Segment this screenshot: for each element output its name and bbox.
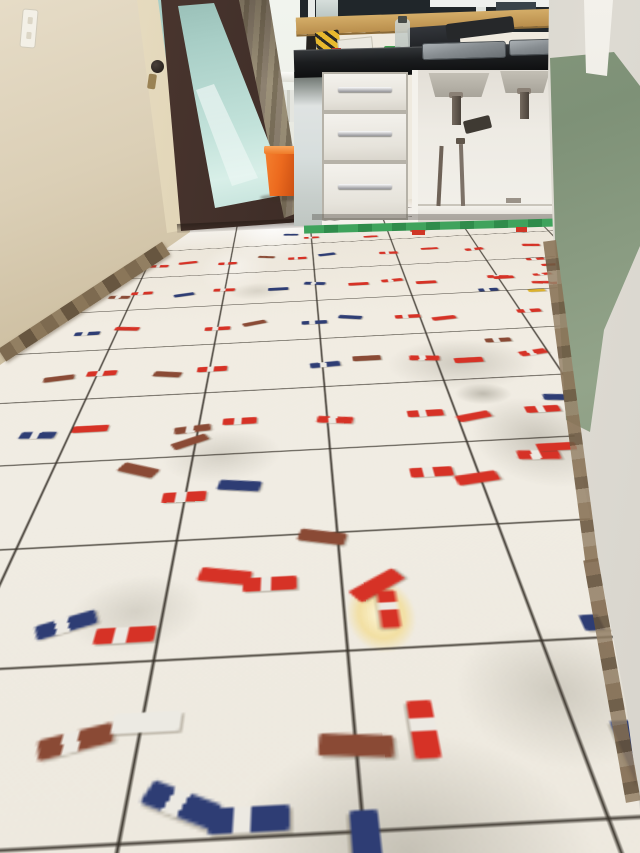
light-switch [19, 8, 38, 48]
tile-leveling-spacer [110, 710, 182, 734]
tile-leveling-spacer [338, 315, 363, 319]
drawer-middle [324, 114, 406, 160]
tile-leveling-spacer [420, 247, 438, 250]
tile-leveling-spacer [241, 576, 295, 592]
tile-leveling-spacer [205, 805, 287, 835]
tile-leveling-spacer [35, 609, 98, 640]
tile-leveling-spacer [173, 292, 194, 298]
drain-pipe-left [452, 96, 461, 125]
supply-pipe-b [459, 144, 465, 206]
tile-leveling-spacer [213, 288, 235, 291]
tile-leveling-spacer [86, 370, 118, 377]
tile-leveling-spacer [161, 491, 207, 503]
shutoff-valve [456, 138, 465, 144]
sink-basin-left [422, 41, 506, 60]
tile-leveling-spacer [288, 257, 306, 260]
tile-leveling-spacer [242, 320, 267, 327]
tile-leveling-spacer [169, 433, 209, 450]
tile-leveling-spacer [452, 356, 483, 362]
tile-leveling-spacer [351, 355, 380, 361]
tile-leveling-spacer [463, 247, 483, 251]
tile-leveling-spacer [217, 262, 236, 265]
drawer-unit [322, 72, 408, 220]
gap-view-outside [294, 72, 322, 226]
tile-leveling-spacer [70, 424, 108, 432]
tile-leveling-spacer [309, 360, 340, 368]
drawer-handle [338, 131, 392, 136]
tile-leveling-spacer [267, 287, 287, 291]
tile-leveling-spacer [431, 315, 457, 321]
tile-leveling-spacer [178, 261, 197, 265]
drawer-bottom [324, 164, 406, 218]
door-lock-icon [151, 60, 164, 73]
tile-leveling-spacer [113, 327, 140, 331]
tile-leveling-spacer [116, 462, 160, 478]
tile-leveling-spacer [318, 252, 336, 256]
under-sink-cabinet [412, 70, 558, 222]
trap-fitting [463, 115, 492, 134]
shelf-debris [506, 198, 521, 203]
red-tape-bit-2 [516, 227, 527, 232]
photo-kitchen-tiling-scene [0, 0, 640, 853]
tile-leveling-spacer [347, 282, 368, 286]
tile-leveling-spacer [516, 450, 562, 459]
tile-leveling-spacer [316, 734, 392, 757]
tile-leveling-spacer [304, 282, 326, 285]
tile-leveling-spacer [376, 589, 401, 627]
tile-leveling-spacer [394, 314, 420, 319]
drawer-handle [338, 184, 392, 189]
tile-leveling-spacer [108, 296, 131, 299]
tile-leveling-spacer [257, 256, 275, 258]
tile-leveling-spacer [222, 416, 256, 424]
tile-leveling-spacer [455, 410, 492, 422]
tile-leveling-spacer [409, 355, 439, 360]
tile-leveling-spacer [415, 280, 436, 284]
tile-leveling-spacer [151, 371, 182, 377]
drain-pipe-right [520, 92, 529, 119]
tile-leveling-spacer [204, 326, 230, 331]
tile-leveling-spacer [297, 528, 348, 545]
tile-leveling-spacer [492, 275, 514, 279]
tile-leveling-spacer [525, 257, 544, 260]
drawer-top [324, 74, 406, 110]
tile-leveling-spacer [73, 331, 100, 336]
red-tape-bit [412, 230, 425, 235]
tile-leveling-spacer [478, 288, 499, 292]
tile-leveling-spacer [406, 700, 442, 759]
tile-leveling-spacer [17, 431, 57, 438]
tile-leveling-spacer [197, 365, 228, 372]
bottle-cap [398, 16, 407, 23]
tile-leveling-spacer [453, 470, 501, 486]
tile-leveling-spacer [131, 291, 154, 295]
tile-leveling-spacer [406, 409, 444, 417]
drawer-handle [338, 87, 392, 92]
tile-leveling-spacer [379, 251, 397, 254]
tile-leveling-spacer [484, 337, 512, 342]
tile-leveling-spacer [301, 320, 327, 325]
tile-leveling-spacer [531, 281, 550, 283]
tile-leveling-spacer [315, 415, 352, 423]
tile-leveling-spacer [522, 244, 540, 246]
kitchen-area [296, 0, 582, 242]
tile-leveling-spacer [523, 404, 561, 412]
tile-leveling-spacer [381, 278, 404, 283]
tile-leveling-spacer [527, 288, 546, 291]
tile-leveling-spacer [173, 423, 210, 434]
tile-leveling-spacer [516, 348, 547, 356]
tile-leveling-spacer [92, 626, 156, 645]
supply-pipe-a [436, 146, 443, 206]
tile-leveling-spacer [36, 722, 112, 762]
tile-leveling-spacer [216, 480, 262, 492]
tile-leveling-spacer [516, 308, 542, 313]
tile-leveling-spacer [349, 809, 385, 853]
tile-leveling-spacer [409, 466, 454, 478]
tile-leveling-spacer [43, 374, 75, 383]
